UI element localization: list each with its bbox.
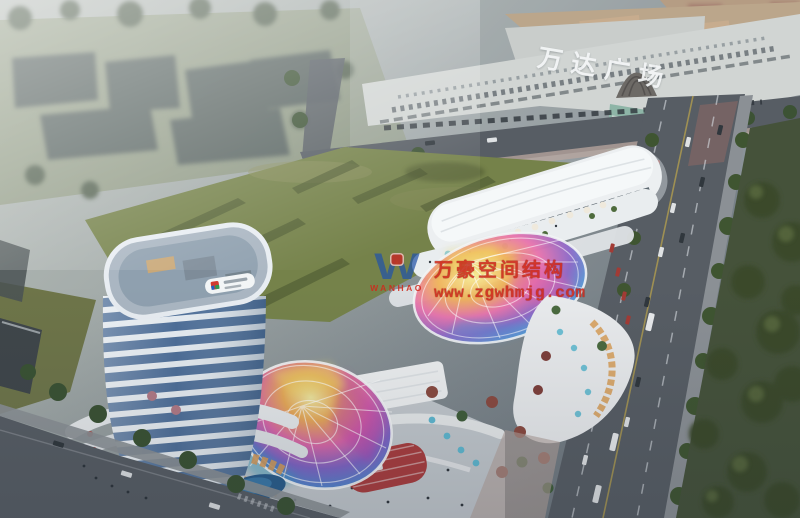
watermark-website: www.zgwhmjg.com	[434, 284, 586, 302]
wanhao-logo: W WANHAO	[368, 252, 426, 302]
watermark-company: 万豪空间结构	[434, 255, 586, 282]
architectural-rendering: 万达广场 W WANHAO 万豪空间结构 www.zgwhmjg.com	[0, 0, 800, 518]
watermark: W WANHAO 万豪空间结构 www.zgwhmjg.com	[368, 252, 586, 302]
wanhao-logo-badge	[390, 253, 404, 266]
watermark-text: 万豪空间结构 www.zgwhmjg.com	[434, 252, 586, 302]
